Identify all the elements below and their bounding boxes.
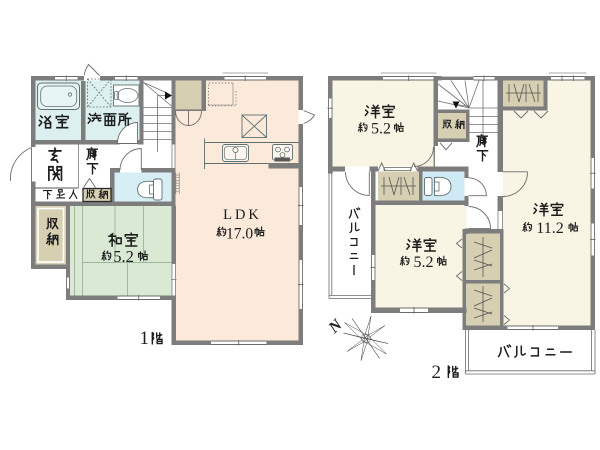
- svg-text:2: 2: [432, 362, 442, 383]
- svg-text:5.2: 5.2: [113, 247, 134, 266]
- svg-text:11.2: 11.2: [536, 220, 563, 237]
- svg-text:LDK: LDK: [223, 207, 262, 223]
- svg-text:1: 1: [140, 328, 150, 349]
- svg-text:5.2: 5.2: [414, 254, 434, 271]
- svg-text:17.0: 17.0: [226, 225, 253, 242]
- svg-text:5.2: 5.2: [371, 120, 391, 137]
